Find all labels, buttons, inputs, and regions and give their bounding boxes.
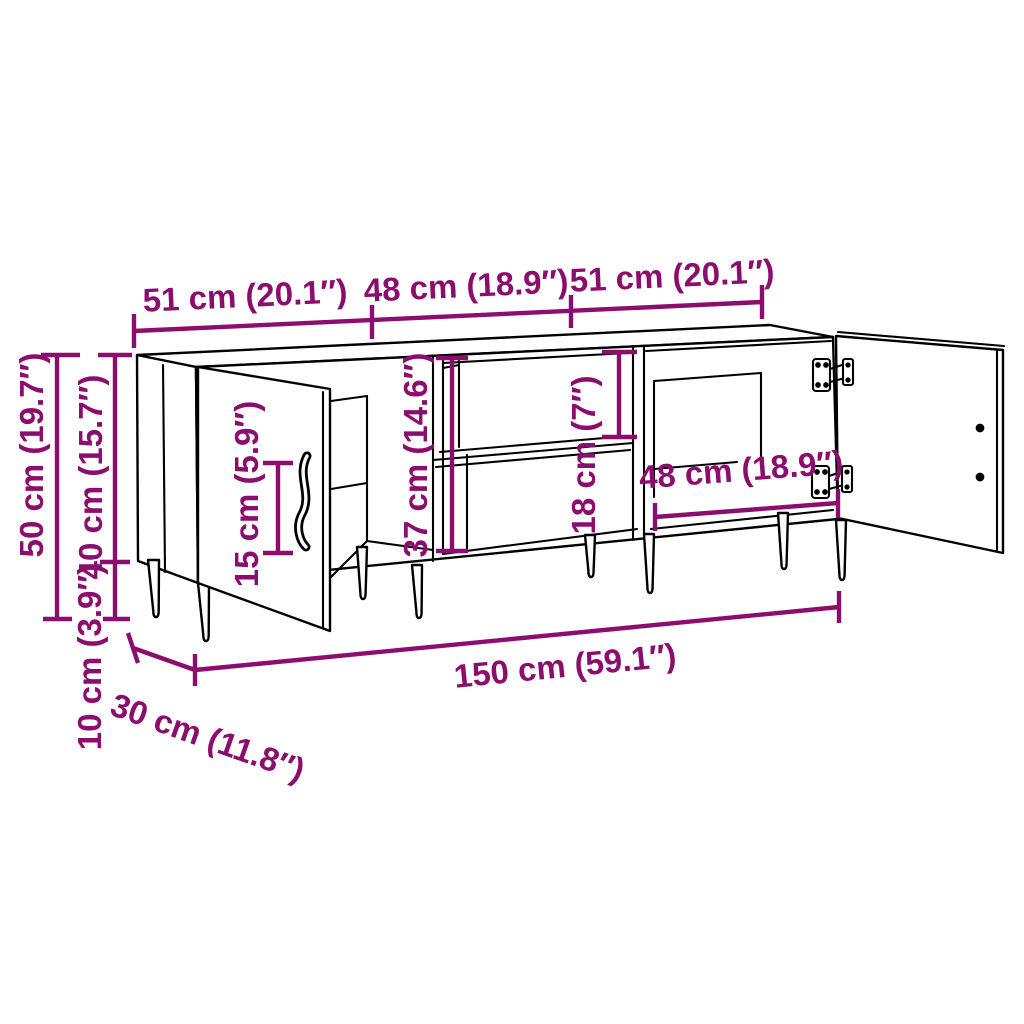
leg	[778, 513, 788, 569]
right-door	[836, 332, 1004, 553]
leg	[412, 565, 422, 618]
cabinet-left-side-panel	[137, 355, 198, 583]
leg	[148, 560, 159, 617]
dim-label-leg-height: 10 cm (3.9″)	[71, 564, 108, 750]
dim-depth-line	[128, 633, 195, 670]
leg	[836, 520, 846, 580]
screw-hole	[977, 425, 983, 431]
dim-label-shelf-opening-height: 18 cm (7″)	[565, 376, 602, 535]
cabinet-dimension-diagram: 51 cm (20.1″) 48 cm (18.9″) 51 cm (20.1″…	[0, 0, 1024, 1024]
leg	[357, 547, 367, 599]
dim-label-overall-height: 50 cm (19.7″)	[13, 353, 50, 558]
dim-label-body-height: 40 cm (15.7″)	[72, 375, 109, 580]
dim-label-section-middle-width: 48 cm (18.9″)	[363, 262, 569, 309]
dim-label-interior-height: 37 cm (14.6″)	[397, 353, 434, 558]
dim-label-section-right-width: 51 cm (20.1″)	[569, 252, 775, 299]
screw-hole	[977, 474, 983, 480]
leg	[198, 583, 209, 641]
leg	[585, 535, 595, 577]
dim-label-handle-length: 15 cm (5.9″)	[228, 401, 265, 587]
dim-label-section-left-width: 51 cm (20.1″)	[142, 272, 348, 319]
right-door-panel	[836, 336, 1003, 553]
dim-label-overall-depth: 30 cm (11.8″)	[106, 686, 310, 789]
dim-label-overall-width: 150 cm (59.1″)	[452, 636, 678, 695]
leg	[644, 534, 654, 593]
